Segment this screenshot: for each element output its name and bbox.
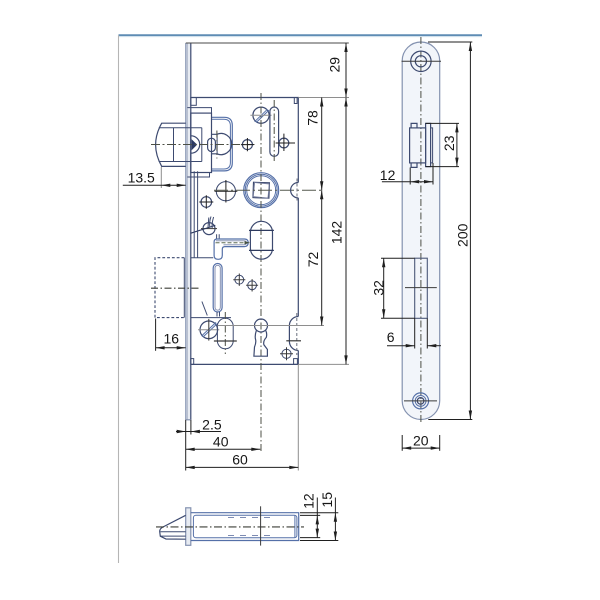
svg-text:60: 60 [232, 452, 248, 468]
svg-text:142: 142 [328, 221, 344, 245]
svg-text:32: 32 [370, 280, 386, 296]
svg-text:40: 40 [213, 434, 229, 450]
svg-text:6: 6 [387, 329, 395, 345]
svg-text:12: 12 [380, 167, 396, 183]
svg-text:12: 12 [300, 493, 316, 509]
svg-text:72: 72 [305, 252, 321, 268]
svg-text:20: 20 [413, 433, 429, 449]
svg-text:23: 23 [441, 135, 457, 151]
svg-text:15: 15 [319, 492, 335, 508]
svg-text:13.5: 13.5 [128, 170, 155, 186]
svg-text:78: 78 [305, 110, 321, 126]
svg-text:200: 200 [455, 223, 471, 247]
svg-text:16: 16 [164, 330, 180, 346]
svg-text:2.5: 2.5 [202, 416, 222, 432]
svg-text:29: 29 [327, 57, 343, 73]
